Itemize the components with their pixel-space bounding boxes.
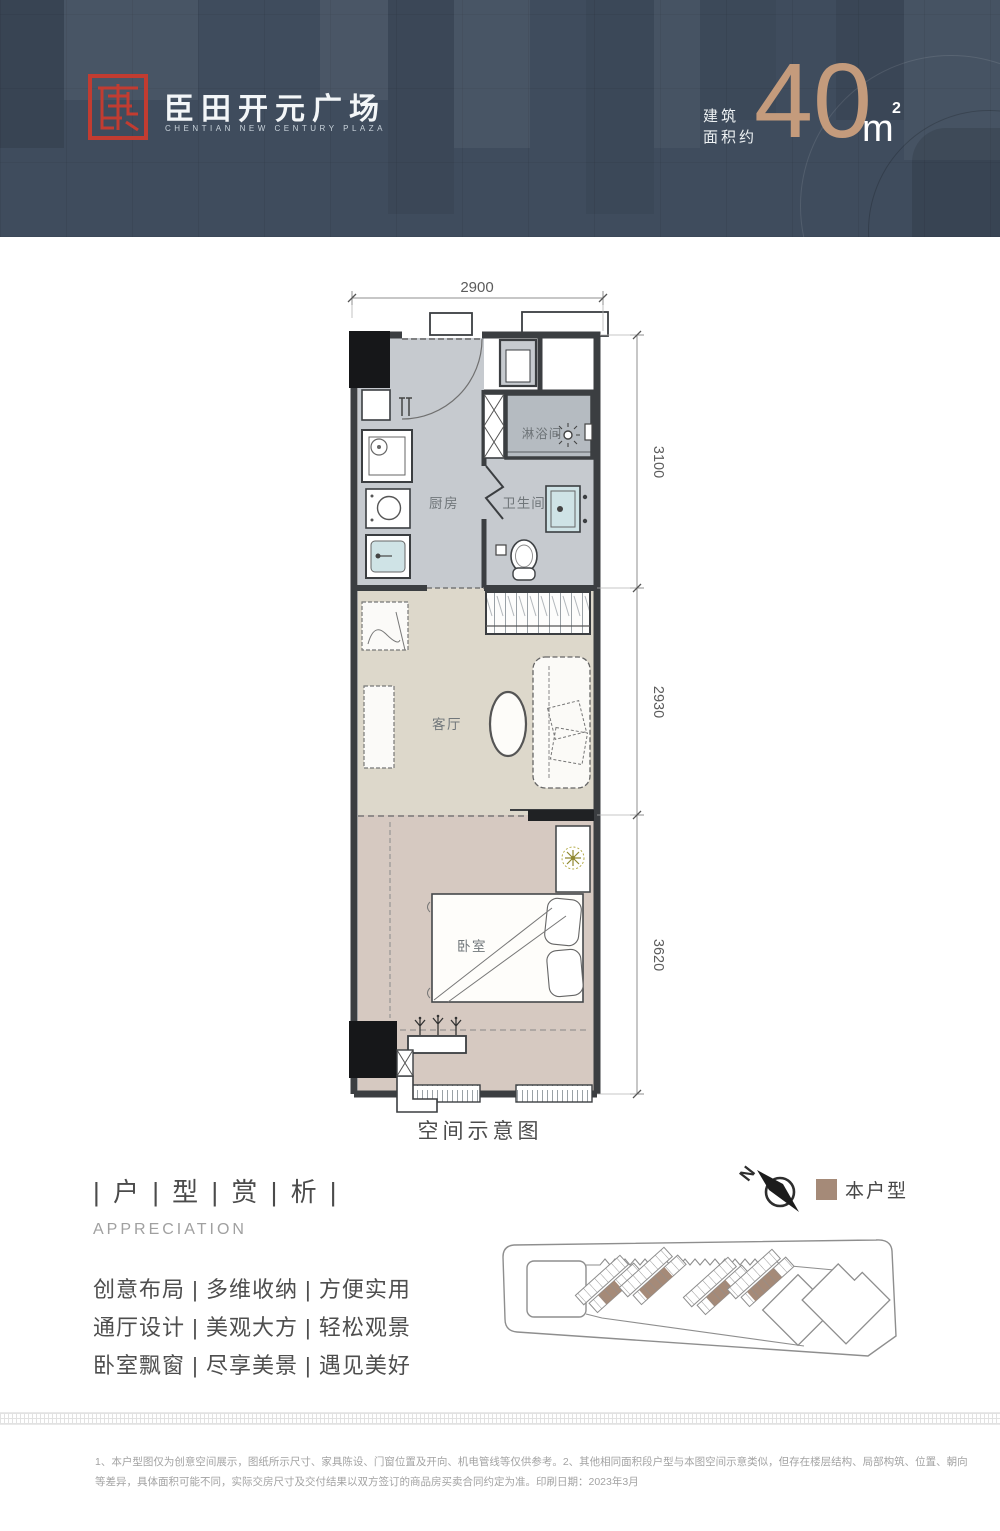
sofa — [533, 657, 590, 788]
curtain-box — [528, 810, 594, 821]
plan-caption: 空间示意图 — [418, 1120, 543, 1143]
site-plan — [493, 1230, 908, 1375]
floorplan: 2900 3100 2930 3620 厨房 淋浴间 卫生间 客厅 卧室 空间示… — [320, 275, 680, 1155]
window-right — [516, 1085, 592, 1102]
feature-line: 卧室飘窗 | 尽享美景 | 遇见美好 — [93, 1347, 423, 1385]
area-label-line2: 面积约 — [703, 127, 757, 148]
exterior-wall-stub — [430, 313, 472, 335]
disclaimer-line2: 等差异，具体面积可能不同，实际交房尺寸及交付结果以双方签订的商品房买卖合同约定为… — [95, 1472, 955, 1492]
shower-floor — [506, 394, 592, 458]
bath-label: 卫生间 — [502, 496, 546, 511]
closet — [486, 592, 590, 634]
flyer-page: 臣田开元广场 CHENTIAN NEW CENTURY PLAZA 建筑 面积约… — [0, 0, 1000, 1531]
area-label: 建筑 面积约 — [703, 106, 757, 148]
area-label-line1: 建筑 — [703, 106, 757, 127]
header-tile — [454, 0, 530, 148]
coffee-table — [490, 692, 526, 756]
appreciation-section: | 户 | 型 | 赏 | 析 | APPRECIATION 创意布局 | 多维… — [93, 1172, 423, 1385]
header-tile — [586, 0, 654, 214]
side-cabinet — [362, 602, 408, 650]
north-label: N — [735, 1162, 759, 1185]
unit-swatch — [816, 1179, 837, 1200]
column-bottom-left — [349, 1021, 397, 1078]
disclaimer: 1、本户型图仅为创意空间展示，图纸所示尺寸、家具陈设、门窗位置及开向、机电管线等… — [95, 1452, 955, 1493]
header-panel-decor — [912, 128, 1000, 237]
header-tile — [654, 0, 700, 148]
dim-right-top-label: 3100 — [650, 446, 666, 478]
site-block-square — [527, 1261, 586, 1317]
bed — [428, 894, 584, 1002]
entry-cabinet — [362, 390, 390, 420]
living-label: 客厅 — [432, 716, 462, 732]
shower-label: 淋浴间 — [522, 427, 563, 441]
appreciation-title: | 户 | 型 | 赏 | 析 | — [93, 1172, 423, 1209]
north-compass-icon: N — [733, 1156, 823, 1218]
feature-line: 通厅设计 | 美观大方 | 轻松观景 — [93, 1309, 423, 1347]
appreciation-subtitle: APPRECIATION — [93, 1221, 423, 1239]
header-tile — [388, 0, 454, 214]
feature-line: 创意布局 | 多维收纳 | 方便实用 — [93, 1271, 423, 1309]
stove — [366, 489, 410, 528]
area-value: 40 — [754, 48, 872, 154]
kitchen-label: 厨房 — [429, 496, 459, 511]
brand-name-en: CHENTIAN NEW CENTURY PLAZA — [165, 124, 386, 133]
disclaimer-line1: 1、本户型图仅为创意空间展示，图纸所示尺寸、家具陈设、门窗位置及开向、机电管线等… — [95, 1452, 955, 1472]
header-tile — [0, 0, 64, 148]
unit-legend-label: 本户型 — [845, 1176, 908, 1203]
column-top-left — [349, 331, 390, 388]
washing-machine — [362, 430, 412, 482]
small-shaft — [397, 1050, 413, 1076]
ac-unit — [506, 350, 530, 382]
feature-list: 创意布局 | 多维收纳 | 方便实用 通厅设计 | 美观大方 | 轻松观景 卧室… — [93, 1271, 423, 1385]
unit-legend: 本户型 — [816, 1176, 908, 1203]
area-unit: m — [862, 108, 894, 151]
tv-cabinet — [364, 686, 394, 768]
nightstand — [556, 826, 590, 892]
decorative-band — [0, 1412, 1000, 1425]
dim-right-middle-label: 2930 — [650, 686, 666, 718]
kitchen-sink — [366, 535, 410, 578]
dim-right-bottom-label: 3620 — [650, 939, 666, 971]
brand-logo-icon — [88, 74, 148, 140]
brand-name-cn: 臣田开元广场 — [164, 84, 386, 128]
dim-top-label: 2900 — [460, 279, 493, 296]
area-exponent: 2 — [892, 100, 901, 118]
header-banner: 臣田开元广场 CHENTIAN NEW CENTURY PLAZA 建筑 面积约… — [0, 0, 1000, 237]
duct-shaft — [484, 394, 504, 458]
bedroom-label: 卧室 — [457, 938, 487, 954]
